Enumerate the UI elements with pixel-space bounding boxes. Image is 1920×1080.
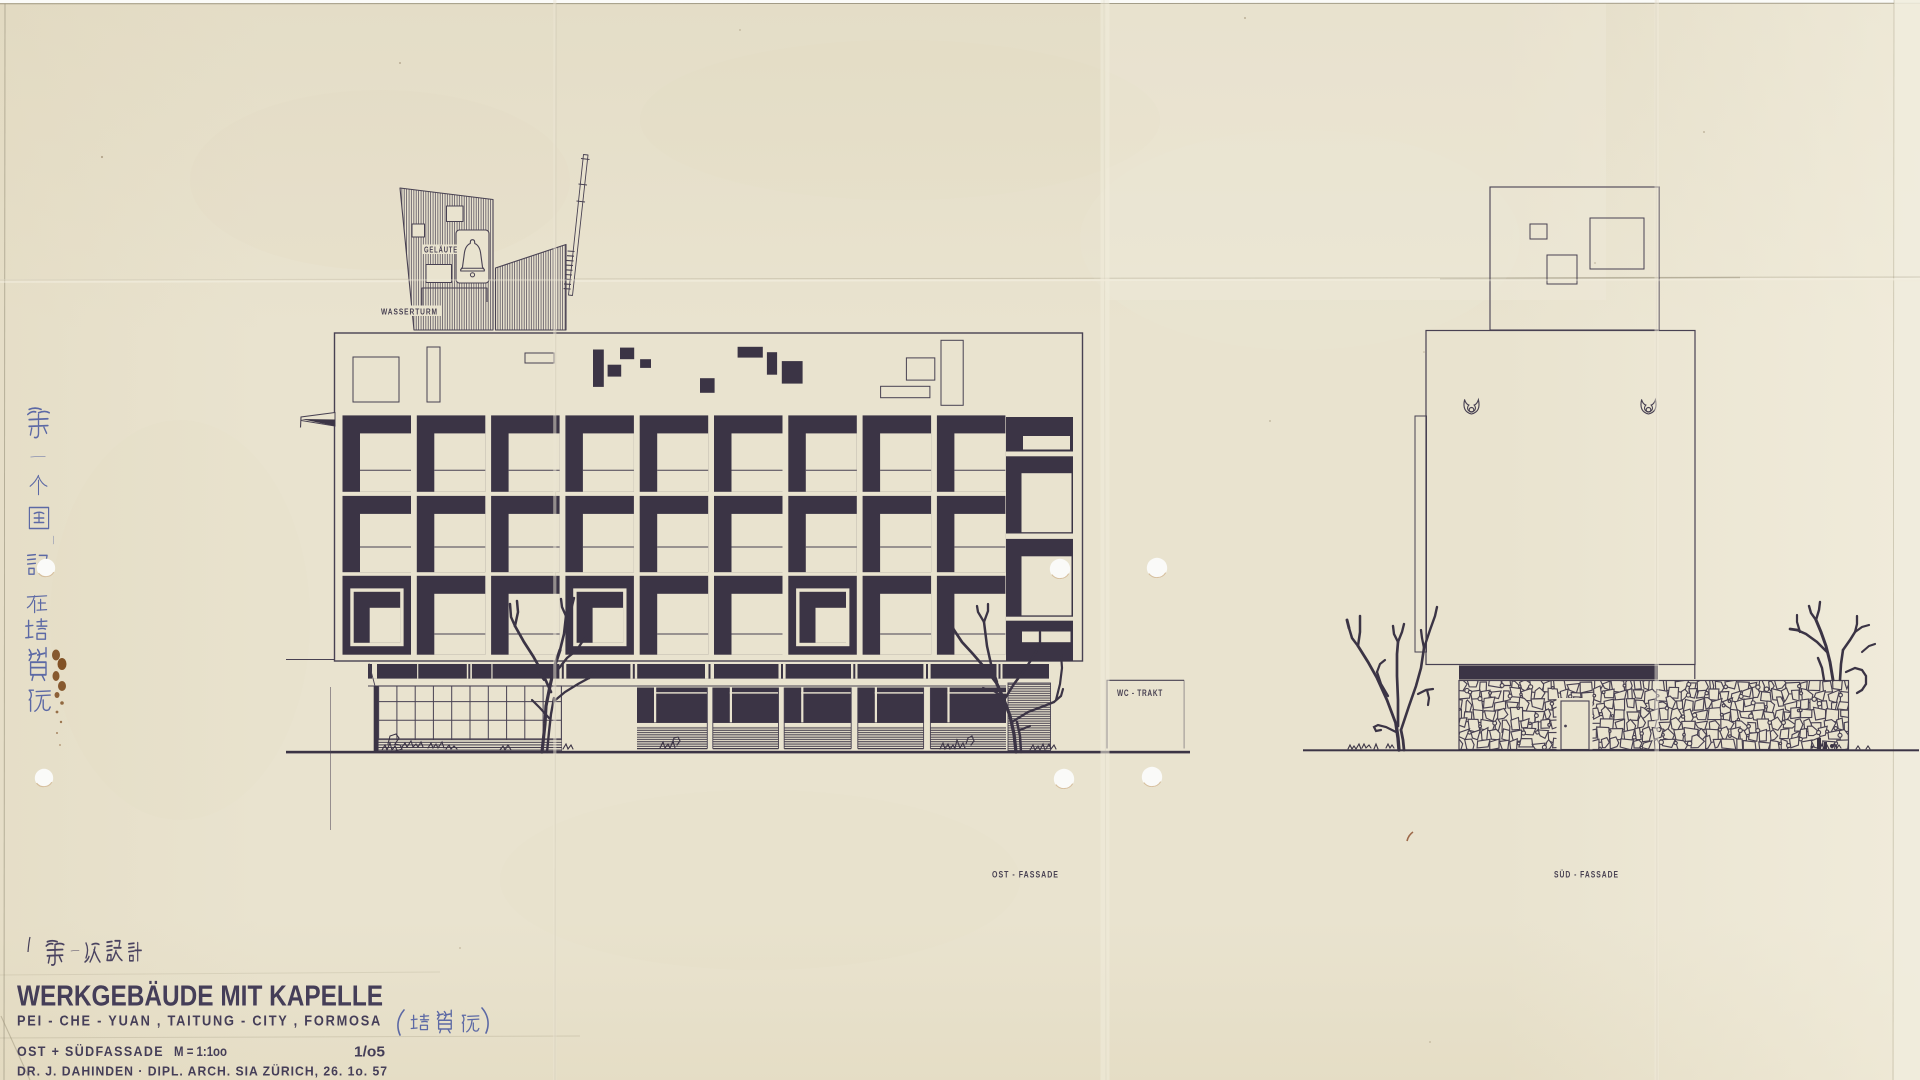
svg-text:WERKGEBÄUDE MIT KAPELLE: WERKGEBÄUDE MIT KAPELLE [17, 981, 383, 1013]
svg-text:OST + SÜDFASSADE: OST + SÜDFASSADE [17, 1043, 164, 1059]
svg-text:WASSERTURM: WASSERTURM [381, 307, 438, 317]
svg-text:DR. J. DAHINDEN · DIPL. AR: DR. J. DAHINDEN · DIPL. ARCH. SIA ZÜRICH… [17, 1064, 388, 1079]
svg-text:OST - FASSADE: OST - FASSADE [992, 870, 1059, 881]
svg-text:1/o5: 1/o5 [354, 1045, 385, 1061]
svg-text:GELÄUTE: GELÄUTE [424, 246, 458, 255]
svg-text:WC - TRAKT: WC - TRAKT [1117, 688, 1163, 698]
svg-text:SÜD - FASSADE: SÜD - FASSADE [1554, 870, 1619, 881]
svg-text:PEI - CHE - YUAN , TAITU: PEI - CHE - YUAN , TAITUNG - CITY , FORM… [17, 1014, 382, 1030]
svg-text:M = 1:1oo: M = 1:1oo [174, 1044, 227, 1059]
